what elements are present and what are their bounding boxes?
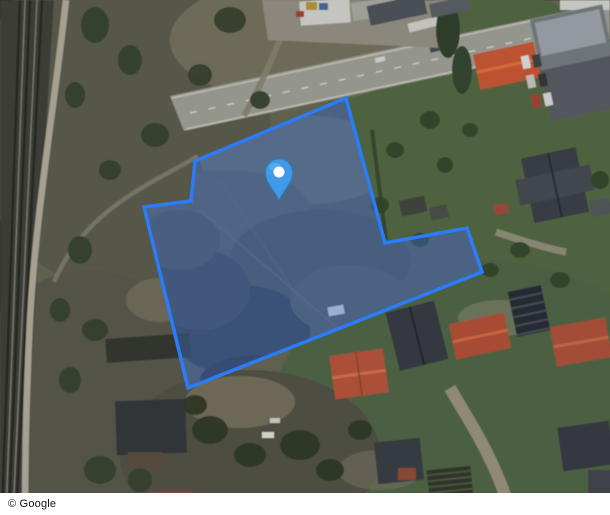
attribution-bar: © Google	[0, 493, 610, 515]
map-view: © Google	[0, 0, 610, 515]
google-attribution: © Google	[8, 498, 56, 510]
marker-center-dot	[274, 167, 285, 178]
satellite-map[interactable]	[0, 0, 610, 515]
